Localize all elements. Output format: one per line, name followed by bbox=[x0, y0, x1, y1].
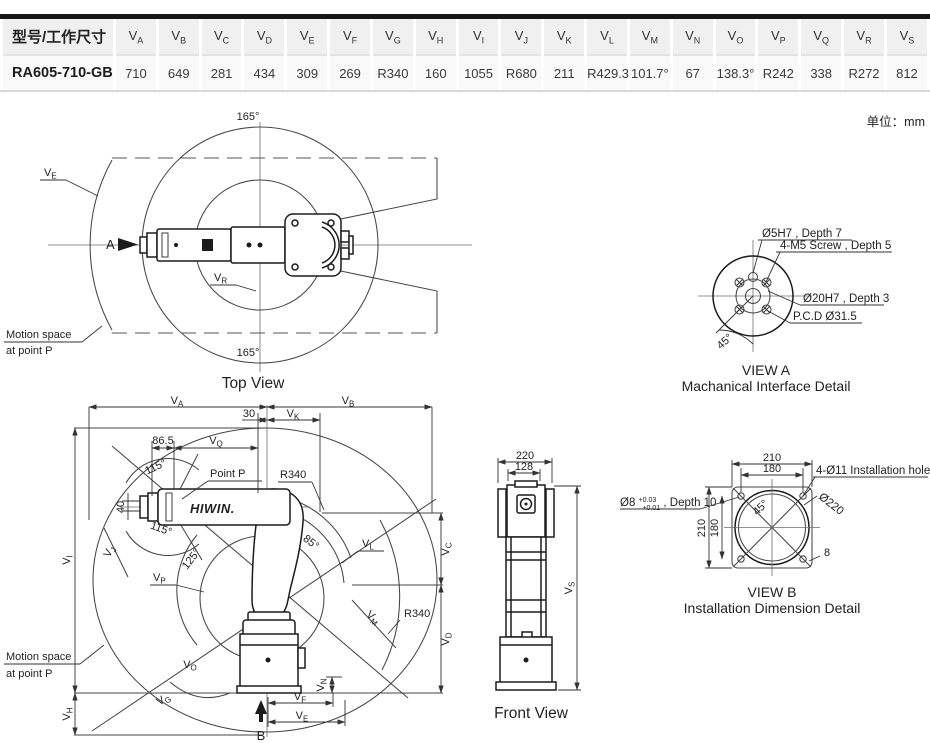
robot-side-silhouette: HIWIN. bbox=[140, 489, 305, 693]
view-a-caption-2: Machanical Interface Detail bbox=[682, 378, 851, 394]
dim-label-vb: VB bbox=[342, 395, 355, 409]
model-cell: RA605-710-GB bbox=[3, 56, 113, 90]
col-header-vq: VQ bbox=[801, 19, 841, 56]
motion-space-elev-label-1: Motion space bbox=[6, 651, 71, 663]
col-header-vb: VB bbox=[159, 19, 199, 56]
pin-note-tol-upper: +0.03 bbox=[639, 497, 657, 504]
dim-value-e: 309 bbox=[287, 56, 327, 90]
dim-value-n: 67 bbox=[673, 56, 713, 90]
angle-125-label: 125° bbox=[180, 546, 203, 571]
col-header-vg: VG bbox=[373, 19, 413, 56]
top-view-angle-bottom: 165° bbox=[237, 347, 260, 359]
view-arrow-a-icon bbox=[118, 238, 138, 251]
dim-label-vp: VP bbox=[153, 572, 166, 586]
dim-label-128: 128 bbox=[515, 461, 533, 473]
r340-upper-label: R340 bbox=[280, 469, 306, 481]
robot-top-silhouette bbox=[140, 214, 353, 276]
dim-value-k: 211 bbox=[544, 56, 584, 90]
view-b-note-dia220: Ø220 bbox=[816, 491, 846, 518]
front-view-caption: Front View bbox=[494, 705, 569, 722]
datasheet-page: 型号/工作尺寸 VAVBVCVDVEVFVGVHVIVJVKVLVMVNVOVP… bbox=[0, 0, 930, 743]
dim-label-vh: VH bbox=[61, 707, 75, 720]
view-a-note-pin: Ø5H7 , Depth 7 bbox=[762, 228, 842, 240]
view-b-dim-8: 8 bbox=[824, 547, 830, 559]
dim-value-h: 160 bbox=[416, 56, 456, 90]
table-value-row: RA605-710-GB 710649281434309269R34016010… bbox=[3, 56, 927, 90]
view-a-angle-45: 45° bbox=[715, 332, 735, 352]
front-view-drawing: 220 128 bbox=[494, 450, 581, 722]
col-header-vs: VS bbox=[887, 19, 927, 56]
dim-value-j: R680 bbox=[501, 56, 541, 90]
dim-label-vj: VJ bbox=[101, 544, 118, 560]
dim-value-d: 434 bbox=[244, 56, 284, 90]
col-header-vh: VH bbox=[416, 19, 456, 56]
top-view-caption: Top View bbox=[222, 375, 285, 392]
dim-value-c: 281 bbox=[202, 56, 242, 90]
col-header-va: VA bbox=[116, 19, 156, 56]
dim-label-ve: VE bbox=[296, 710, 309, 724]
col-header-vp: VP bbox=[758, 19, 798, 56]
view-arrow-a-label: A bbox=[106, 237, 115, 252]
view-a-caption-1: VIEW A bbox=[742, 362, 791, 378]
dim-label-vk: VK bbox=[287, 408, 300, 422]
col-header-vf: VF bbox=[330, 19, 370, 56]
dim-label-vn: VN bbox=[315, 678, 329, 691]
dim-value-s: 812 bbox=[887, 56, 927, 90]
dim-value-l: R429.3 bbox=[587, 56, 627, 90]
motion-space-label-1: Motion space bbox=[6, 329, 71, 341]
view-b-pin-note: Ø8 +0.03 +0.01 , Depth 10 bbox=[620, 493, 716, 513]
point-p-label: Point P bbox=[210, 468, 245, 480]
dim-value-f: 269 bbox=[330, 56, 370, 90]
dim-label-vm: VM bbox=[363, 609, 383, 629]
view-a-note-screws: 4-M5 Screw , Depth 5 bbox=[780, 240, 891, 252]
dim-label-30: 30 bbox=[243, 408, 255, 420]
dim-label-vl: VL bbox=[362, 538, 374, 552]
view-a-note-bore: Ø20H7 , Depth 3 bbox=[803, 293, 889, 305]
dim-value-q: 338 bbox=[801, 56, 841, 90]
hiwin-logo: HIWIN. bbox=[190, 501, 235, 516]
view-b-drawing: 45° 210 180 210 180 4-Ø11 Installation h… bbox=[620, 452, 930, 616]
dim-value-a: 710 bbox=[116, 56, 156, 90]
view-arrow-b-label: B bbox=[257, 728, 266, 743]
view-b-dim-180-left: 180 bbox=[709, 519, 721, 537]
view-a-note-pcd: P.C.D Ø31.5 bbox=[793, 311, 857, 323]
dim-label-vo: VO bbox=[183, 659, 197, 673]
pin-note-tol-lower: +0.01 bbox=[642, 505, 660, 512]
col-header-vd: VD bbox=[244, 19, 284, 56]
view-arrow-b-icon bbox=[255, 700, 267, 722]
top-view-drawing: 165° 165° VE A VR Motion space at point … bbox=[4, 111, 472, 392]
dim-label-vs: VS bbox=[563, 582, 577, 595]
col-header-vm: VM bbox=[630, 19, 670, 56]
dim-value-p: R242 bbox=[758, 56, 798, 90]
angle-85-label: 85° bbox=[301, 533, 322, 553]
dim-label-40: 40 bbox=[115, 501, 127, 513]
table-header-row: 型号/工作尺寸 VAVBVCVDVEVFVGVHVIVJVKVLVMVNVOVP… bbox=[3, 19, 927, 56]
r340-lower-label: R340 bbox=[404, 608, 430, 620]
top-view-angle-top: 165° bbox=[237, 111, 260, 123]
dim-label-vd: VD bbox=[440, 632, 454, 645]
dim-label-vi: VI bbox=[61, 555, 75, 565]
robot-front-silhouette bbox=[496, 481, 556, 690]
dim-value-o: 138.3° bbox=[716, 56, 756, 90]
motion-space-label-2: at point P bbox=[6, 345, 52, 357]
motion-space-elev-label-2: at point P bbox=[6, 668, 52, 680]
dim-label-ve-top: VE bbox=[44, 167, 57, 181]
col-header-vj: VJ bbox=[501, 19, 541, 56]
col-header-vk: VK bbox=[544, 19, 584, 56]
col-header-vl: VL bbox=[587, 19, 627, 56]
view-b-note-holes: 4-Ø11 Installation hole bbox=[816, 465, 930, 477]
col-header-vr: VR bbox=[844, 19, 884, 56]
dim-label-vc: VC bbox=[440, 542, 454, 555]
view-a-drawing: 45° Ø5H7 , Depth 7 4-M5 Screw , Depth 5 … bbox=[682, 228, 892, 394]
pin-note-suffix: , Depth 10 bbox=[663, 497, 716, 509]
col-header-vn: VN bbox=[673, 19, 713, 56]
view-b-dim-180-top: 180 bbox=[763, 463, 781, 475]
dim-label-vr: VR bbox=[214, 272, 227, 286]
technical-drawing: 单位：mm bbox=[0, 88, 930, 743]
view-b-caption-2: Installation Dimension Detail bbox=[684, 600, 861, 616]
table-header-model: 型号/工作尺寸 bbox=[3, 19, 113, 56]
dim-value-r: R272 bbox=[844, 56, 884, 90]
pin-note-main: Ø8 bbox=[620, 497, 635, 509]
view-b-angle-45: 45° bbox=[751, 498, 771, 518]
col-header-vc: VC bbox=[202, 19, 242, 56]
view-b-dim-210-left: 210 bbox=[696, 519, 708, 537]
col-header-vo: VO bbox=[716, 19, 756, 56]
view-b-caption-1: VIEW B bbox=[747, 584, 796, 600]
col-header-vi: VI bbox=[459, 19, 499, 56]
unit-note: 单位：mm bbox=[867, 114, 925, 129]
angle-115-top-label: 115° bbox=[143, 457, 168, 477]
dim-value-m: 101.7° bbox=[630, 56, 670, 90]
side-elevation-drawing: HIWIN. VA VB 30 VK bbox=[4, 395, 454, 743]
dim-label-86-5: 86.5 bbox=[152, 435, 173, 447]
dim-value-g: R340 bbox=[373, 56, 413, 90]
dim-value-b: 649 bbox=[159, 56, 199, 90]
spec-table: 型号/工作尺寸 VAVBVCVDVEVFVGVHVIVJVKVLVMVNVOVP… bbox=[0, 14, 930, 92]
dim-label-va: VA bbox=[171, 395, 184, 409]
dim-label-vq: VQ bbox=[209, 435, 223, 449]
col-header-ve: VE bbox=[287, 19, 327, 56]
dim-value-i: 1055 bbox=[459, 56, 499, 90]
